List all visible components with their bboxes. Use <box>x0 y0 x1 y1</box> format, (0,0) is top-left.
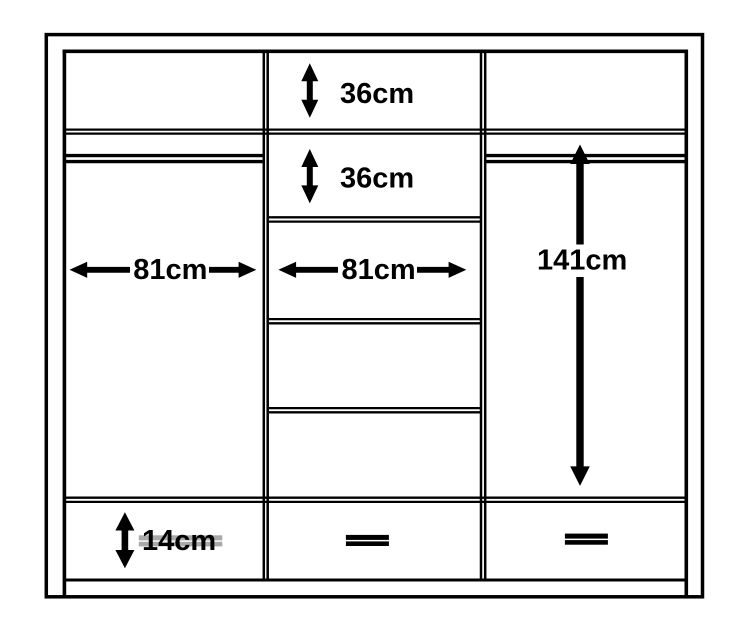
svg-text:81cm: 81cm <box>342 254 416 286</box>
svg-text:36cm: 36cm <box>340 163 414 195</box>
svg-text:141cm: 141cm <box>537 245 627 277</box>
svg-text:14cm: 14cm <box>142 525 216 557</box>
svg-text:81cm: 81cm <box>133 254 207 286</box>
svg-text:36cm: 36cm <box>340 78 414 110</box>
